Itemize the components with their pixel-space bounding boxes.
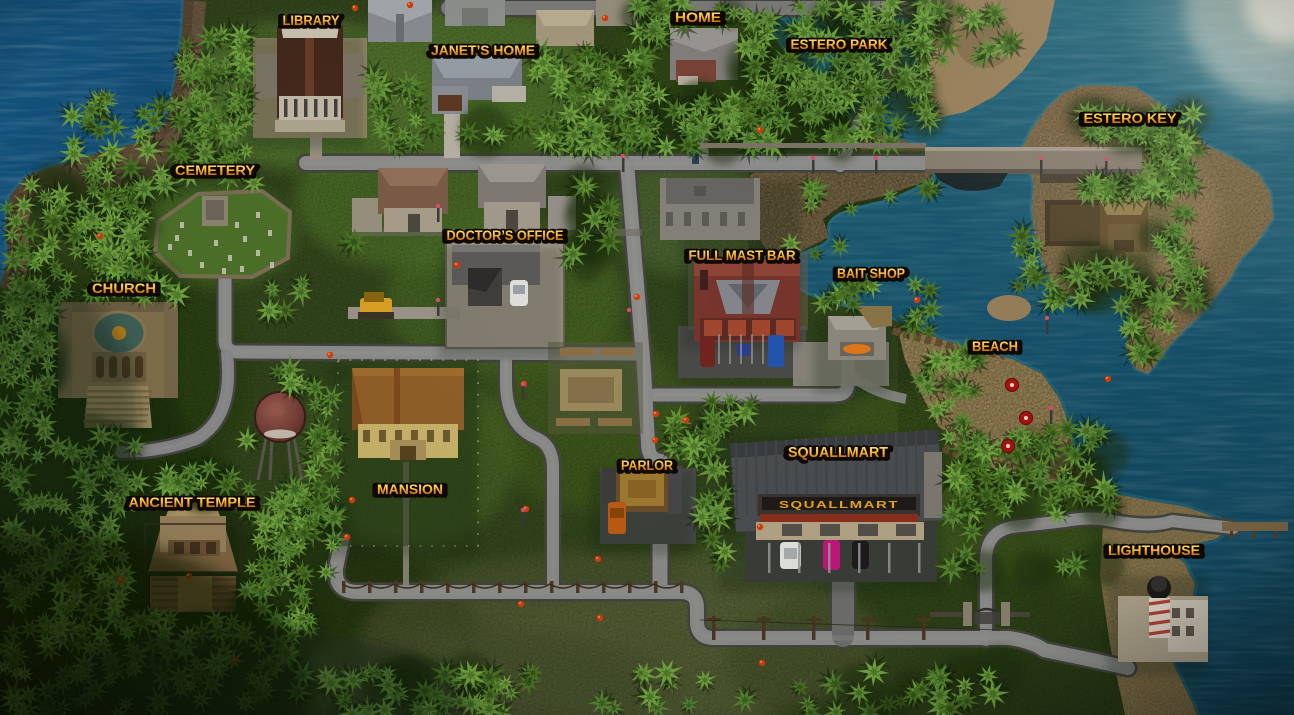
svg-text:ANCIENT TEMPLE: ANCIENT TEMPLE (129, 495, 256, 510)
svg-text:BEACH: BEACH (972, 339, 1018, 354)
svg-text:FULL MAST BAR: FULL MAST BAR (689, 248, 796, 263)
svg-text:PARLOR: PARLOR (621, 458, 673, 473)
svg-text:SQUALLMART: SQUALLMART (788, 445, 888, 461)
svg-text:DOCTOR’S OFFICE: DOCTOR’S OFFICE (447, 228, 564, 243)
svg-text:JANET’S HOME: JANET’S HOME (431, 43, 535, 58)
svg-text:CHURCH: CHURCH (92, 281, 156, 296)
svg-text:ESTERO PARK: ESTERO PARK (791, 37, 888, 52)
svg-text:CEMETERY: CEMETERY (175, 163, 255, 178)
svg-text:LIGHTHOUSE: LIGHTHOUSE (1108, 543, 1200, 558)
svg-text:ESTERO KEY: ESTERO KEY (1084, 111, 1177, 126)
svg-text:LIBRARY: LIBRARY (283, 13, 340, 28)
svg-text:HOME: HOME (675, 10, 721, 25)
svg-text:MANSION: MANSION (377, 482, 443, 497)
svg-text:BAIT SHOP: BAIT SHOP (837, 266, 905, 281)
